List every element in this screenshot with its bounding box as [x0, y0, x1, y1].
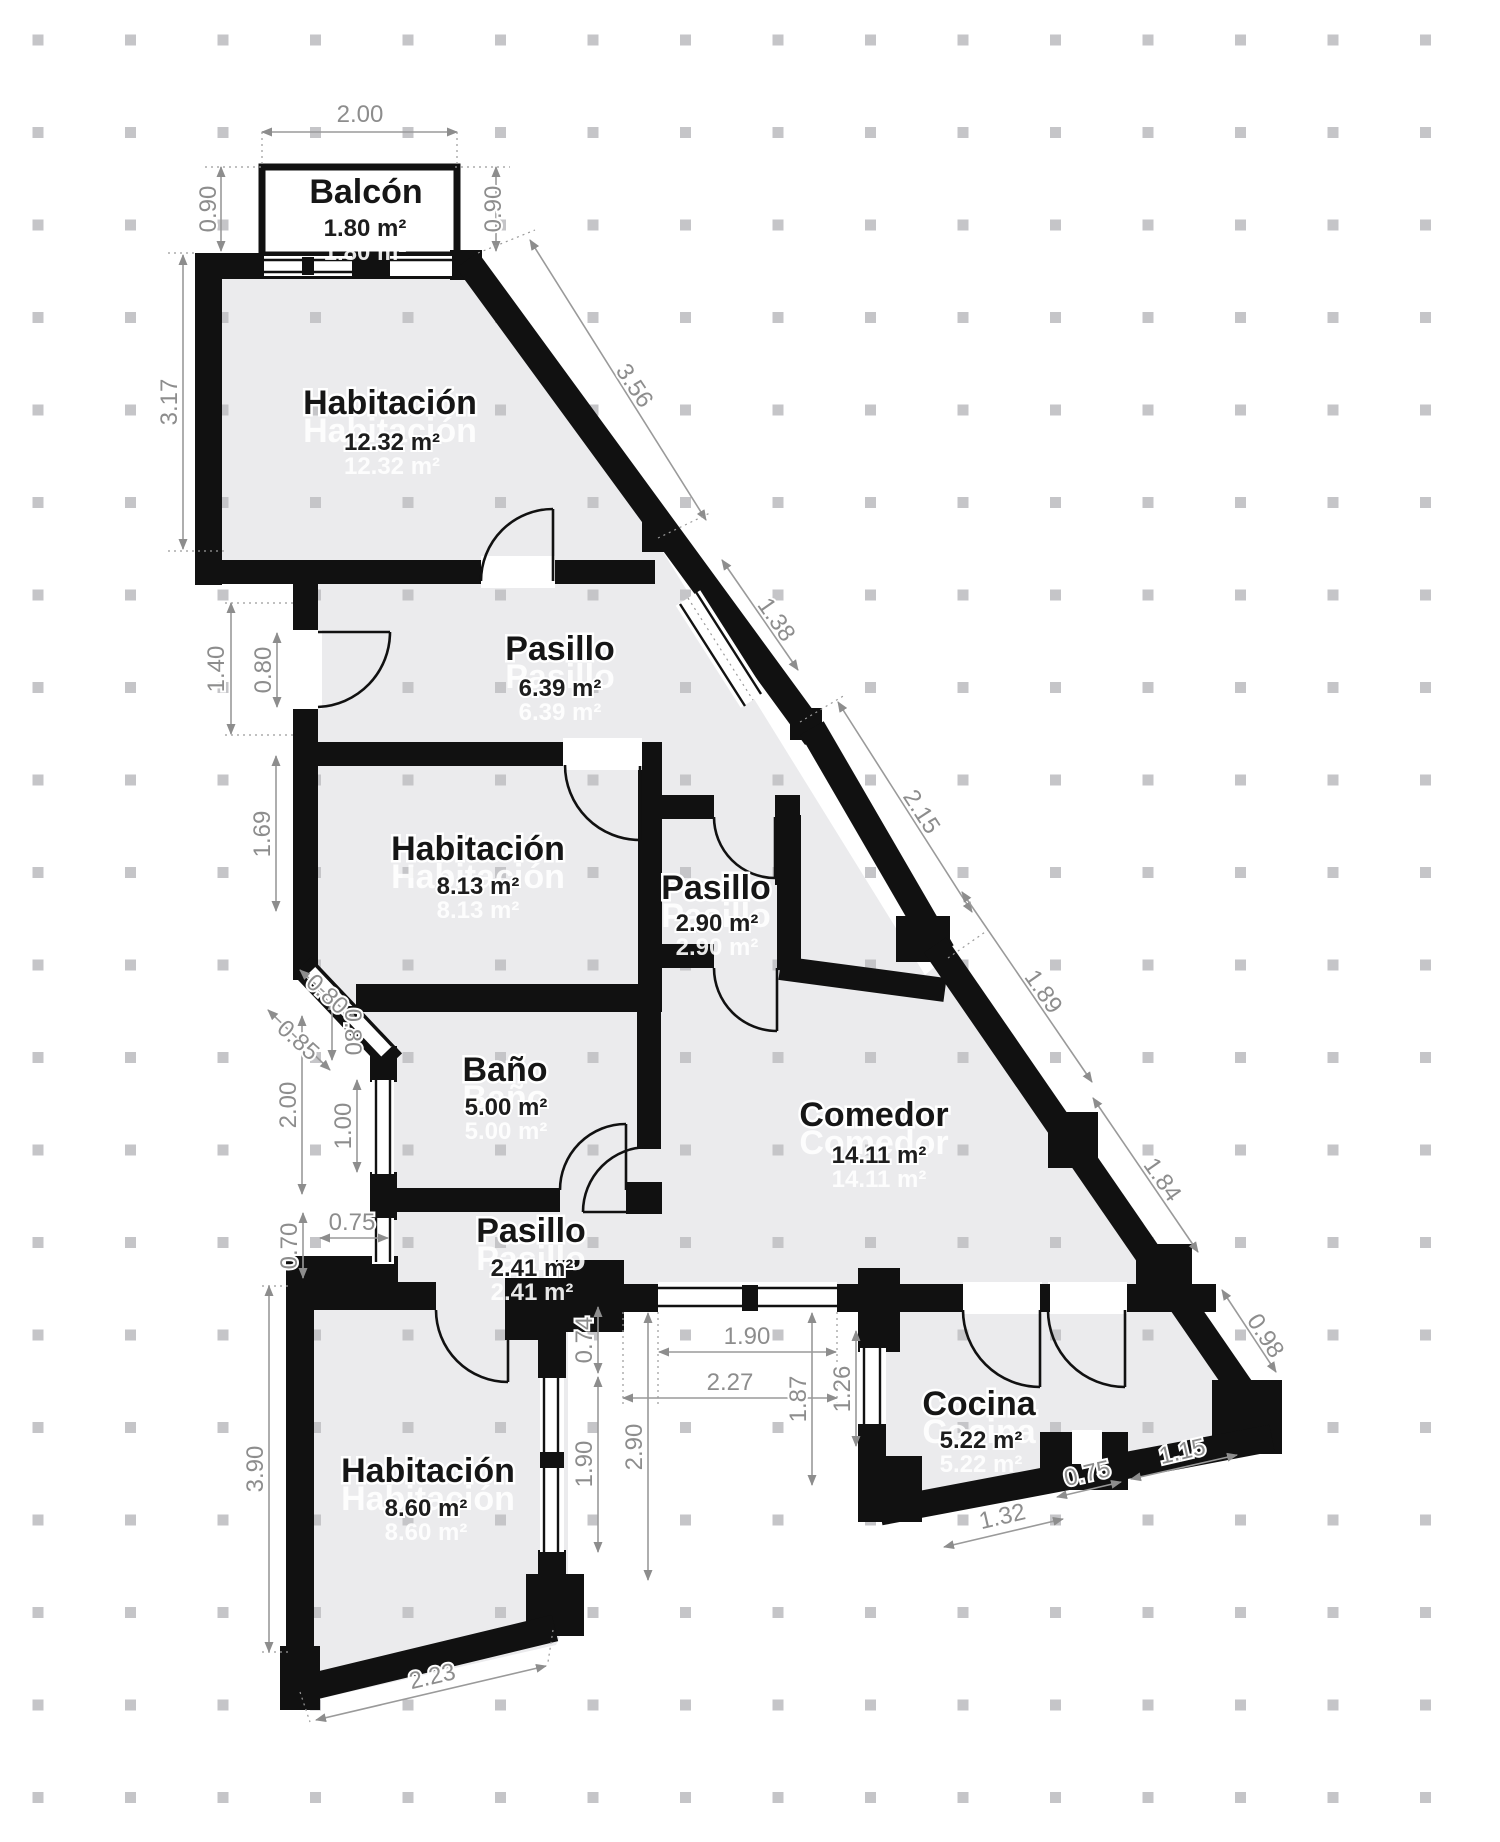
- room-area-habitacion-1: 12.32 m²: [344, 429, 440, 456]
- grid-dot: [773, 1700, 784, 1711]
- grid-dot: [1143, 1330, 1154, 1341]
- grid-dot: [33, 1422, 44, 1433]
- grid-dot: [1235, 1330, 1246, 1341]
- grid-dot: [33, 960, 44, 971]
- room-label-bano: Baño: [463, 1051, 548, 1089]
- grid-dot: [865, 775, 876, 786]
- grid-dot: [125, 1145, 136, 1156]
- grid-dot: [125, 775, 136, 786]
- grid-dot: [958, 775, 969, 786]
- grid-dot: [1143, 35, 1154, 46]
- grid-dot: [218, 1792, 229, 1803]
- grid-dot: [773, 312, 784, 323]
- grid-dot: [1050, 682, 1061, 693]
- room-label-habitacion-1: Habitación: [303, 384, 477, 422]
- grid-dot: [1420, 1792, 1431, 1803]
- grid-dot: [33, 1792, 44, 1803]
- grid-dot: [588, 775, 599, 786]
- grid-dot: [1143, 1145, 1154, 1156]
- grid-dot: [680, 35, 691, 46]
- grid-dot: [865, 220, 876, 231]
- room-label-cocina: Cocina: [922, 1385, 1036, 1423]
- grid-dot: [865, 867, 876, 878]
- grid-dot: [865, 1607, 876, 1618]
- room-area-echo-habitacion-2: 8.13 m²: [437, 897, 520, 924]
- dimension-label-16: 2.00: [275, 1082, 302, 1129]
- grid-dot: [588, 1700, 599, 1711]
- grid-dot: [33, 775, 44, 786]
- grid-dot: [865, 497, 876, 508]
- grid-dot: [588, 1052, 599, 1063]
- grid-dot: [588, 960, 599, 971]
- grid-dot: [1328, 682, 1339, 693]
- grid-dot: [680, 775, 691, 786]
- grid-dot: [1420, 1237, 1431, 1248]
- grid-dot: [1328, 1607, 1339, 1618]
- grid-dot: [403, 35, 414, 46]
- grid-dot: [1328, 1052, 1339, 1063]
- grid-dot: [125, 312, 136, 323]
- grid-dot: [680, 1607, 691, 1618]
- grid-dot: [1420, 775, 1431, 786]
- grid-dot: [865, 127, 876, 138]
- floorplan-canvas: 2.000.900.903.173.561.382.151.891.840.98…: [0, 0, 1500, 1842]
- room-area-comedor: 14.11 m²: [832, 1142, 927, 1169]
- grid-dot: [958, 405, 969, 416]
- room-area-echo-pasillo-1: 6.39 m²: [519, 699, 602, 726]
- grid-dot: [1235, 405, 1246, 416]
- grid-dot: [1328, 312, 1339, 323]
- grid-dot: [125, 682, 136, 693]
- grid-dot: [680, 1145, 691, 1156]
- grid-dot: [1235, 1237, 1246, 1248]
- grid-dot: [495, 1792, 506, 1803]
- grid-dot: [218, 960, 229, 971]
- grid-dot: [958, 1052, 969, 1063]
- grid-dot: [33, 1330, 44, 1341]
- grid-dot: [773, 220, 784, 231]
- grid-dot: [495, 1607, 506, 1618]
- grid-dot: [1143, 312, 1154, 323]
- grid-dot: [310, 1792, 321, 1803]
- grid-dot: [773, 1515, 784, 1526]
- grid-dot: [218, 1052, 229, 1063]
- dimension-label-9: 0.98: [1241, 1309, 1289, 1363]
- grid-dot: [773, 35, 784, 46]
- grid-dot: [125, 1792, 136, 1803]
- grid-dot: [1420, 960, 1431, 971]
- grid-dot: [495, 1145, 506, 1156]
- grid-dot: [1235, 312, 1246, 323]
- grid-dot: [403, 312, 414, 323]
- grid-dot: [1143, 1422, 1154, 1433]
- dimension-label-11: 0.80: [250, 647, 277, 694]
- grid-dot: [1143, 960, 1154, 971]
- grid-dot: [1235, 35, 1246, 46]
- grid-dot: [680, 1515, 691, 1526]
- grid-dot: [588, 220, 599, 231]
- grid-dot: [773, 1052, 784, 1063]
- grid-dot: [125, 960, 136, 971]
- grid-dot: [1420, 1145, 1431, 1156]
- grid-dot: [403, 775, 414, 786]
- grid-dot: [680, 682, 691, 693]
- grid-dot: [1235, 1052, 1246, 1063]
- grid-dot: [33, 1145, 44, 1156]
- grid-dot: [310, 497, 321, 508]
- grid-dot: [495, 405, 506, 416]
- room-area-echo-balcon: 1.80 m²: [324, 239, 407, 266]
- room-area-cocina: 5.22 m²: [940, 1427, 1023, 1454]
- grid-dot: [33, 35, 44, 46]
- grid-dot: [218, 590, 229, 601]
- grid-dot: [1420, 497, 1431, 508]
- grid-dot: [1143, 1515, 1154, 1526]
- grid-dot: [1050, 497, 1061, 508]
- grid-dot: [1050, 775, 1061, 786]
- room-area-habitacion-3: 8.60 m²: [385, 1495, 468, 1522]
- grid-dot: [773, 497, 784, 508]
- grid-dot: [958, 1237, 969, 1248]
- dimension-label-27: 1.87: [785, 1376, 812, 1423]
- grid-dot: [680, 1700, 691, 1711]
- grid-dot: [865, 1237, 876, 1248]
- grid-dot: [495, 590, 506, 601]
- dimension-label-3: 3.17: [156, 379, 183, 426]
- grid-dot: [1420, 590, 1431, 601]
- grid-dot: [865, 1700, 876, 1711]
- dimension-label-26: 2.27: [707, 1369, 754, 1396]
- dimension-label-18: 0.70: [276, 1223, 303, 1270]
- grid-dot: [125, 867, 136, 878]
- grid-dot: [958, 1792, 969, 1803]
- grid-dot: [588, 590, 599, 601]
- grid-dot: [1328, 1145, 1339, 1156]
- room-label-pasillo-3: Pasillo: [476, 1212, 586, 1250]
- grid-dot: [403, 1422, 414, 1433]
- grid-dot: [1420, 220, 1431, 231]
- room-area-pasillo-2: 2.90 m²: [676, 910, 759, 937]
- grid-dot: [218, 1330, 229, 1341]
- grid-dot: [495, 1422, 506, 1433]
- room-label-balcon: Balcón: [309, 173, 422, 211]
- grid-dot: [958, 497, 969, 508]
- grid-dot: [1328, 1422, 1339, 1433]
- dimension-label-7: 1.89: [1019, 965, 1068, 1019]
- grid-dot: [958, 35, 969, 46]
- dimension-label-22: 0.74: [571, 1317, 598, 1364]
- dimension-label-19: 0.75: [329, 1209, 376, 1236]
- grid-dot: [1235, 1515, 1246, 1526]
- room-area-pasillo-3: 2.41 m²: [491, 1255, 574, 1282]
- grid-dot: [403, 1052, 414, 1063]
- floorplan-svg: 2.000.900.903.173.561.382.151.891.840.98…: [0, 0, 1500, 1842]
- grid-dot: [33, 1700, 44, 1711]
- room-area-echo-pasillo-3: 2.41 m²: [491, 1279, 574, 1306]
- dimension-label-8: 1.84: [1138, 1153, 1187, 1207]
- grid-dot: [403, 682, 414, 693]
- grid-dot: [865, 1792, 876, 1803]
- grid-dot: [865, 35, 876, 46]
- grid-dot: [680, 1237, 691, 1248]
- grid-dot: [1420, 682, 1431, 693]
- grid-dot: [1328, 590, 1339, 601]
- dimension-label-23: 1.90: [571, 1441, 598, 1488]
- grid-dot: [1420, 867, 1431, 878]
- dimension-label-28: 1.26: [829, 1366, 856, 1413]
- grid-dot: [218, 1607, 229, 1618]
- grid-dot: [218, 1700, 229, 1711]
- grid-dot: [403, 1792, 414, 1803]
- grid-dot: [588, 312, 599, 323]
- room-label-habitacion-3: Habitación: [341, 1452, 515, 1490]
- grid-dot: [773, 1237, 784, 1248]
- grid-dot: [403, 1145, 414, 1156]
- grid-dot: [958, 590, 969, 601]
- grid-dot: [125, 1330, 136, 1341]
- grid-dot: [1050, 1607, 1061, 1618]
- dimension-label-10: 1.40: [203, 646, 230, 693]
- dimension-label-6: 2.15: [897, 785, 945, 839]
- grid-dot: [310, 1145, 321, 1156]
- grid-dot: [218, 775, 229, 786]
- grid-dot: [1235, 960, 1246, 971]
- grid-dot: [33, 682, 44, 693]
- grid-dot: [1143, 682, 1154, 693]
- grid-dot: [958, 1607, 969, 1618]
- grid-dot: [588, 35, 599, 46]
- dimension-label-12: 1.69: [249, 811, 276, 858]
- grid-dot: [1143, 1052, 1154, 1063]
- grid-dot: [1235, 497, 1246, 508]
- grid-dot: [1050, 312, 1061, 323]
- grid-dot: [33, 867, 44, 878]
- grid-dot: [1420, 1700, 1431, 1711]
- grid-dot: [865, 590, 876, 601]
- grid-dot: [1143, 867, 1154, 878]
- grid-dot: [1328, 127, 1339, 138]
- grid-dot: [1050, 590, 1061, 601]
- grid-dot: [1143, 497, 1154, 508]
- dimension-label-25: 1.90: [724, 1323, 771, 1350]
- grid-dot: [218, 127, 229, 138]
- grid-dot: [1050, 867, 1061, 878]
- grid-dot: [1328, 867, 1339, 878]
- grid-dot: [1143, 775, 1154, 786]
- grid-dot: [958, 220, 969, 231]
- grid-dot: [773, 405, 784, 416]
- room-label-habitacion-2: Habitación: [391, 830, 565, 868]
- grid-dot: [1050, 1422, 1061, 1433]
- grid-dot: [1050, 405, 1061, 416]
- grid-dot: [125, 405, 136, 416]
- dimension-label-0: 2.00: [337, 101, 384, 128]
- grid-dot: [125, 497, 136, 508]
- grid-dot: [495, 1700, 506, 1711]
- grid-dot: [1050, 220, 1061, 231]
- grid-dot: [1143, 1700, 1154, 1711]
- grid-dot: [1420, 1607, 1431, 1618]
- grid-dot: [1050, 960, 1061, 971]
- grid-dot: [773, 1422, 784, 1433]
- grid-dot: [680, 405, 691, 416]
- grid-dot: [1235, 1607, 1246, 1618]
- grid-dot: [958, 312, 969, 323]
- grid-dot: [958, 682, 969, 693]
- grid-dot: [588, 1792, 599, 1803]
- grid-dot: [1420, 312, 1431, 323]
- grid-dot: [403, 1330, 414, 1341]
- grid-dot: [680, 497, 691, 508]
- grid-dot: [495, 497, 506, 508]
- grid-dot: [1235, 682, 1246, 693]
- grid-dot: [588, 1237, 599, 1248]
- room-area-habitacion-2: 8.13 m²: [437, 873, 520, 900]
- grid-dot: [1420, 1422, 1431, 1433]
- grid-dot: [33, 497, 44, 508]
- grid-dot: [33, 1237, 44, 1248]
- grid-dot: [680, 1330, 691, 1341]
- grid-dot: [1328, 1515, 1339, 1526]
- grid-dot: [1328, 497, 1339, 508]
- grid-dot: [125, 220, 136, 231]
- grid-dot: [33, 220, 44, 231]
- grid-dot: [125, 1607, 136, 1618]
- grid-dot: [125, 590, 136, 601]
- grid-dot: [1420, 1052, 1431, 1063]
- grid-dot: [773, 1145, 784, 1156]
- grid-dot: [495, 1330, 506, 1341]
- grid-dot: [1143, 220, 1154, 231]
- grid-dot: [588, 1607, 599, 1618]
- grid-dot: [865, 405, 876, 416]
- grid-dot: [125, 1515, 136, 1526]
- grid-dot: [495, 35, 506, 46]
- grid-dot: [218, 1237, 229, 1248]
- grid-dot: [680, 1052, 691, 1063]
- grid-dot: [403, 590, 414, 601]
- grid-dot: [1328, 1700, 1339, 1711]
- grid-dot: [773, 1792, 784, 1803]
- grid-dot: [218, 1422, 229, 1433]
- grid-dot: [495, 775, 506, 786]
- grid-dot: [1050, 1700, 1061, 1711]
- grid-dot: [1235, 775, 1246, 786]
- grid-dot: [588, 867, 599, 878]
- grid-dot: [33, 1607, 44, 1618]
- grid-dot: [125, 1237, 136, 1248]
- grid-dot: [865, 312, 876, 323]
- grid-dot: [1235, 1700, 1246, 1711]
- grid-dot: [773, 775, 784, 786]
- grid-dot: [773, 1607, 784, 1618]
- grid-dot: [218, 35, 229, 46]
- grid-dot: [1050, 127, 1061, 138]
- grid-dot: [1328, 405, 1339, 416]
- grid-dot: [125, 35, 136, 46]
- grid-dot: [1328, 775, 1339, 786]
- grid-dot: [1050, 1052, 1061, 1063]
- grid-dot: [33, 590, 44, 601]
- grid-dot: [1050, 1792, 1061, 1803]
- room-area-echo-pasillo-2: 2.90 m²: [676, 934, 759, 961]
- grid-dot: [33, 1052, 44, 1063]
- grid-dot: [958, 1515, 969, 1526]
- grid-dot: [1143, 405, 1154, 416]
- grid-dot: [125, 127, 136, 138]
- grid-dot: [958, 1700, 969, 1711]
- grid-dot: [495, 960, 506, 971]
- grid-dot: [403, 960, 414, 971]
- grid-dot: [125, 1700, 136, 1711]
- grid-dot: [403, 497, 414, 508]
- grid-dot: [958, 1145, 969, 1156]
- grid-dot: [773, 127, 784, 138]
- grid-dot: [310, 35, 321, 46]
- grid-dot: [588, 127, 599, 138]
- grid-dot: [1235, 590, 1246, 601]
- grid-dot: [310, 312, 321, 323]
- grid-dot: [33, 312, 44, 323]
- grid-dot: [310, 1237, 321, 1248]
- room-label-pasillo-1: Pasillo: [505, 630, 615, 668]
- room-area-echo-comedor: 14.11 m²: [832, 1166, 927, 1193]
- grid-dot: [1235, 1792, 1246, 1803]
- grid-dot: [1420, 1515, 1431, 1526]
- room-area-echo-cocina: 5.22 m²: [940, 1451, 1023, 1478]
- grid-dot: [680, 1422, 691, 1433]
- grid-dot: [33, 405, 44, 416]
- grid-dot: [865, 682, 876, 693]
- grid-dot: [1328, 1330, 1339, 1341]
- grid-dot: [495, 127, 506, 138]
- grid-dot: [588, 497, 599, 508]
- grid-dot: [403, 1607, 414, 1618]
- grid-dot: [958, 127, 969, 138]
- grid-dot: [1328, 1237, 1339, 1248]
- dimension-label-15: 0.80: [339, 1009, 366, 1056]
- grid-dot: [1420, 127, 1431, 138]
- grid-dot: [1420, 35, 1431, 46]
- room-area-echo-habitacion-3: 8.60 m²: [385, 1519, 468, 1546]
- grid-dot: [218, 1515, 229, 1526]
- grid-dot: [680, 127, 691, 138]
- dimension-label-24: 2.90: [621, 1424, 648, 1471]
- grid-dot: [403, 1700, 414, 1711]
- grid-dot: [1235, 1145, 1246, 1156]
- grid-dot: [403, 1237, 414, 1248]
- grid-dot: [958, 867, 969, 878]
- grid-dot: [773, 1330, 784, 1341]
- grid-dot: [1143, 1792, 1154, 1803]
- grid-dot: [1328, 1792, 1339, 1803]
- grid-dot: [588, 1145, 599, 1156]
- grid-dot: [1143, 127, 1154, 138]
- grid-dot: [680, 312, 691, 323]
- grid-dot: [125, 1052, 136, 1063]
- room-label-comedor: Comedor: [799, 1096, 948, 1134]
- grid-dot: [865, 1052, 876, 1063]
- grid-dot: [1050, 1237, 1061, 1248]
- dimension-label-4: 3.56: [610, 359, 659, 413]
- grid-dot: [33, 1515, 44, 1526]
- room-area-pasillo-1: 6.39 m²: [519, 675, 602, 702]
- grid-dot: [1050, 35, 1061, 46]
- grid-dot: [125, 1422, 136, 1433]
- room-area-echo-bano: 5.00 m²: [465, 1118, 548, 1145]
- grid-dot: [1235, 867, 1246, 878]
- grid-dot: [1328, 220, 1339, 231]
